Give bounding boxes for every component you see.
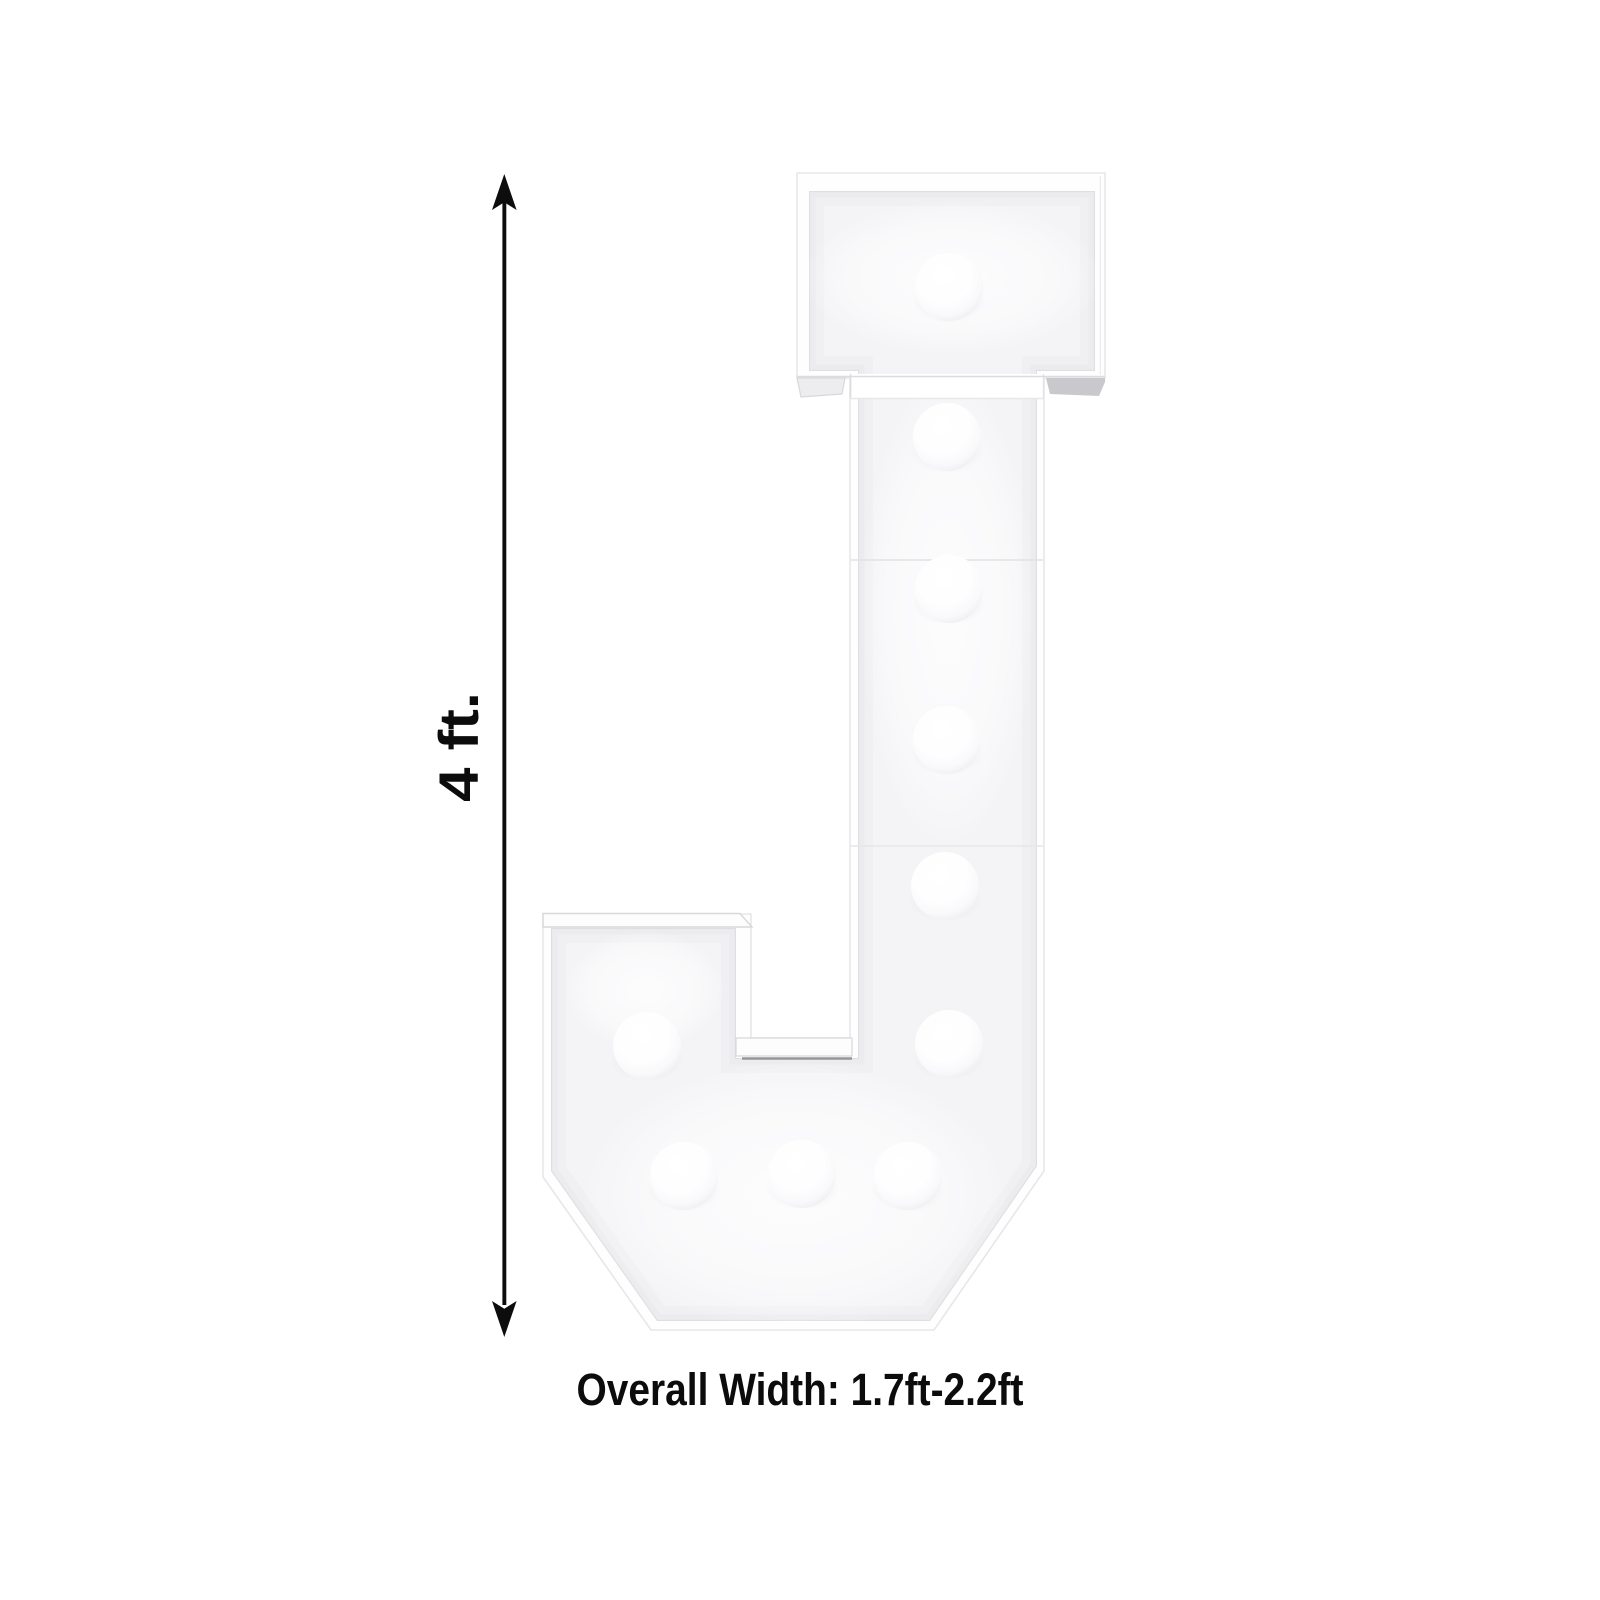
svg-text:Overall Width: 1.7ft-2.2ft: Overall Width: 1.7ft-2.2ft: [577, 1364, 1024, 1415]
svg-text:4 ft.: 4 ft.: [427, 692, 490, 802]
